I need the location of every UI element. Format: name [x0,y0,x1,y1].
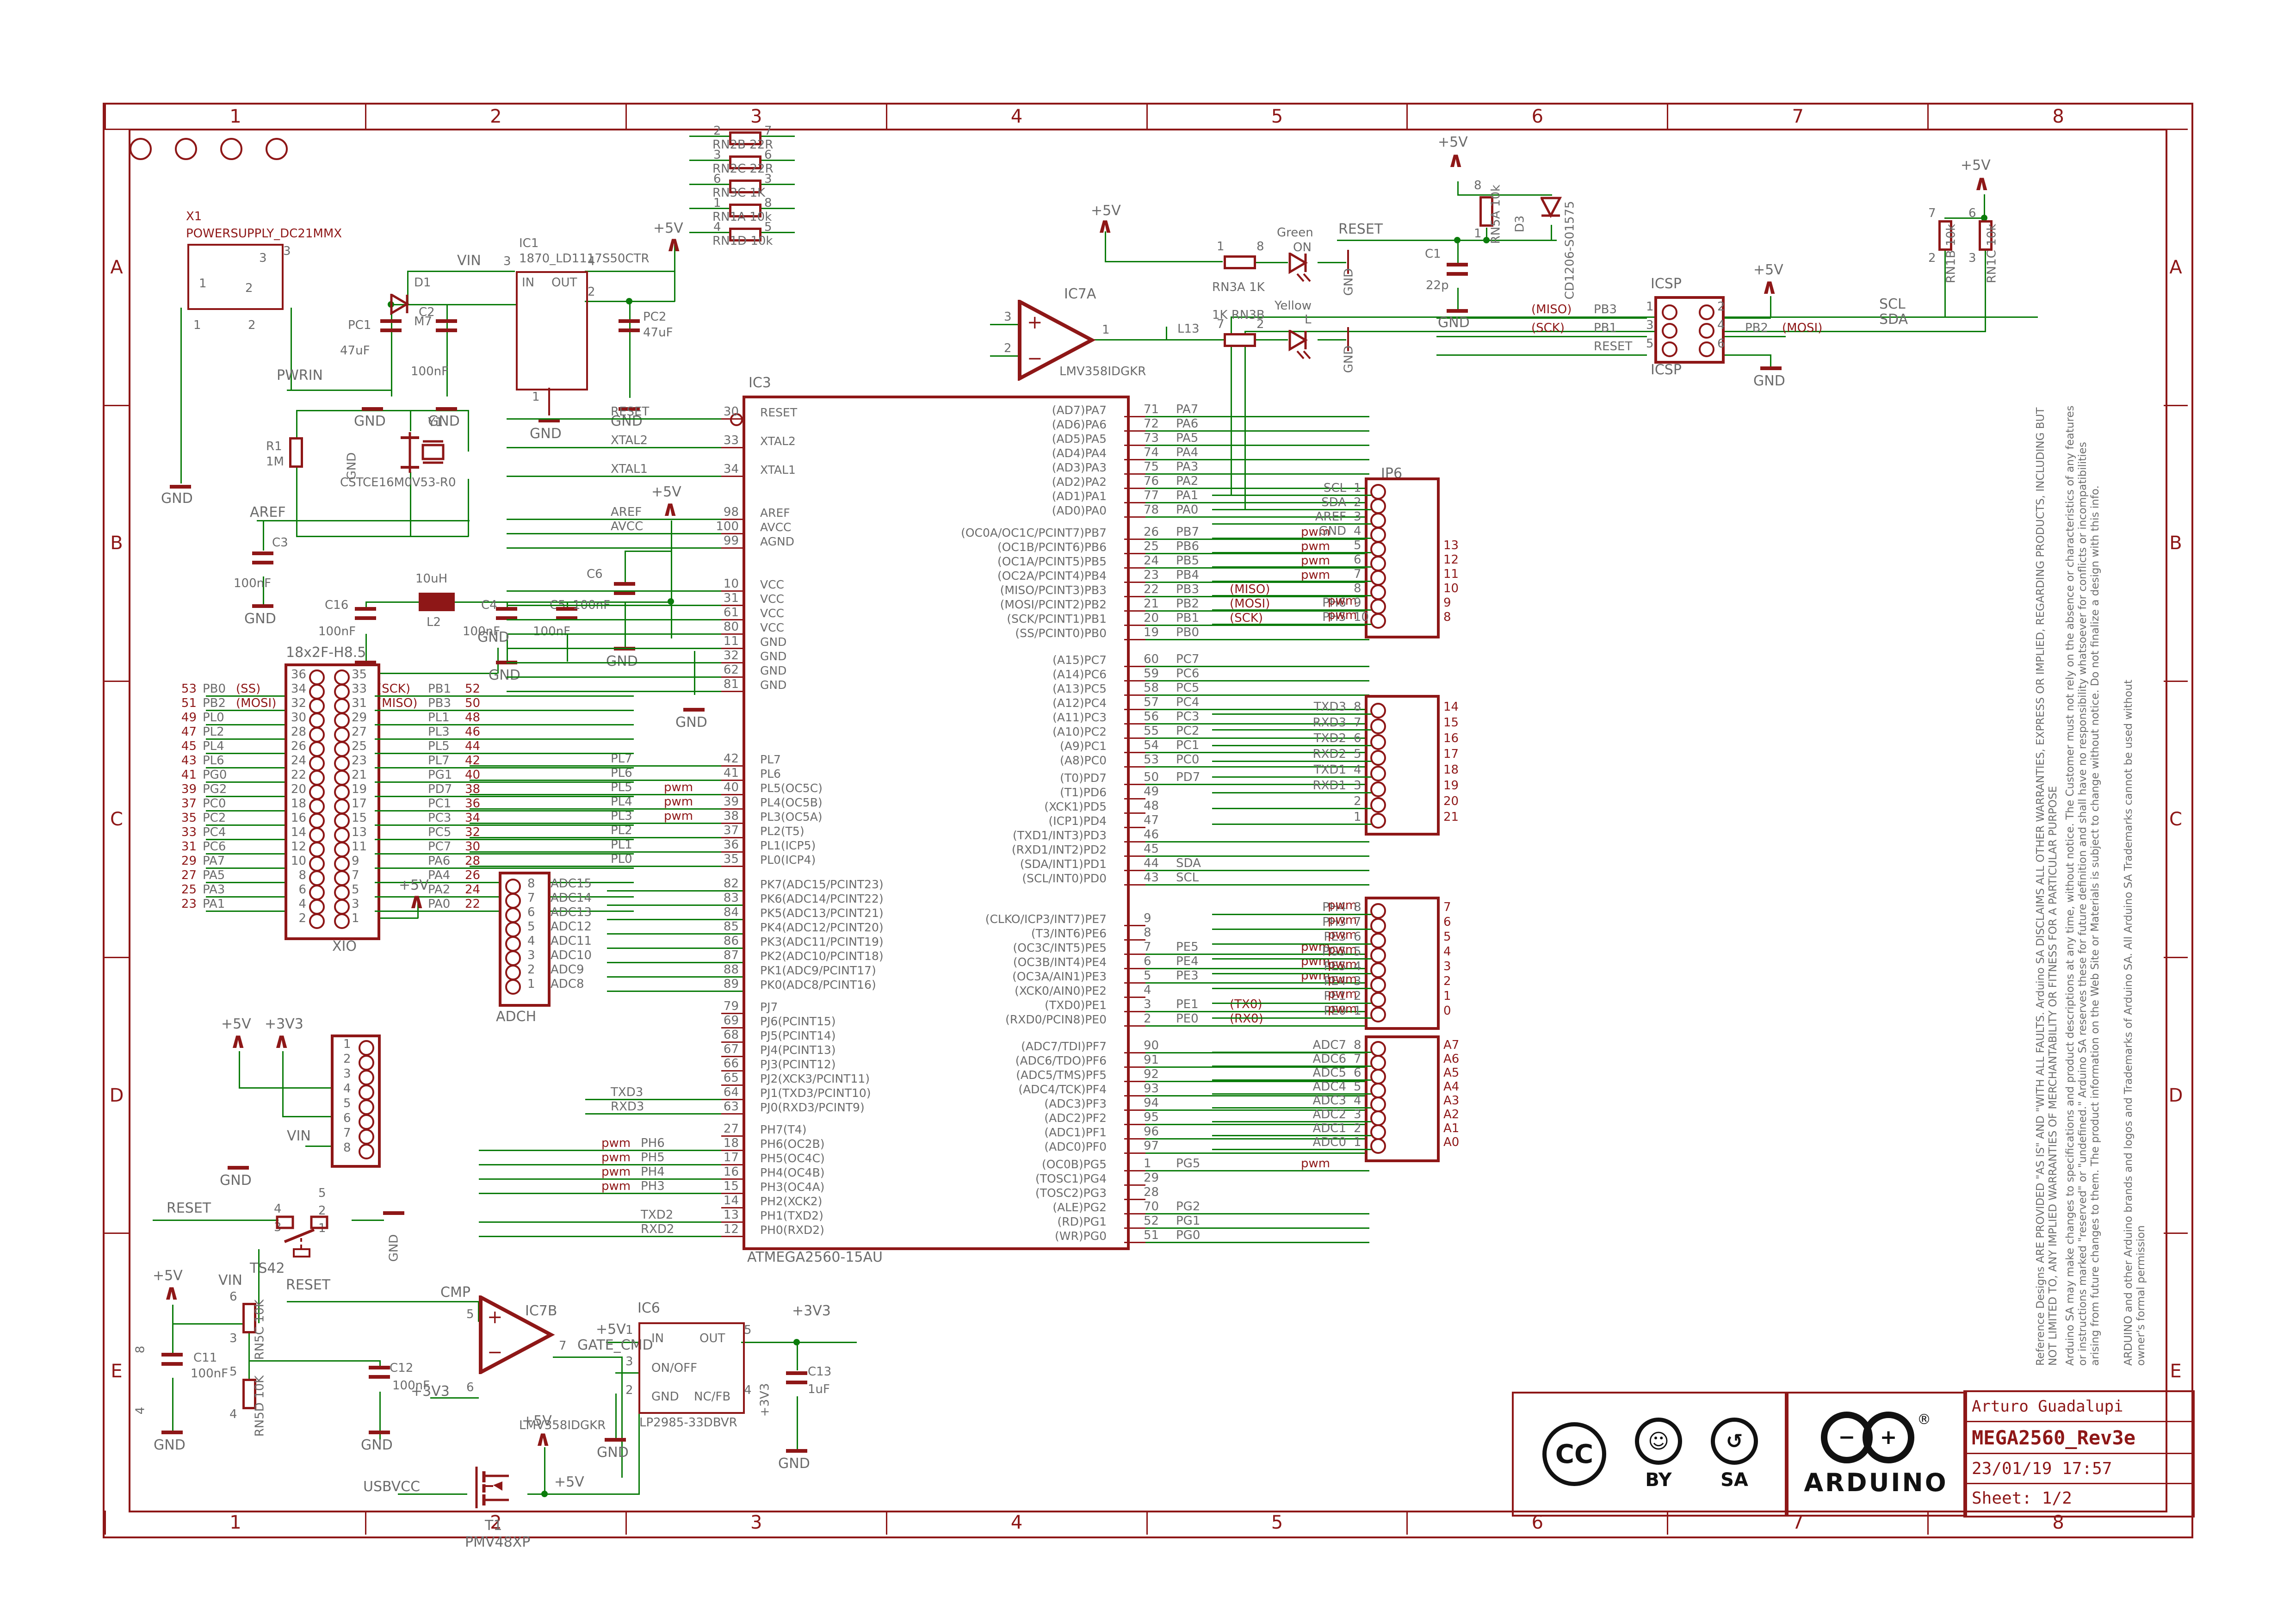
component-ref: R1 [266,440,282,453]
pin-socket [334,842,350,857]
resistor-row: 3 6 RN2C 22R [680,150,810,174]
pin-name: (OC3A/AIN1)PE3 [1012,970,1107,983]
pin-name: (RD)PG1 [1058,1215,1107,1228]
net-label: PA3 [1176,460,1198,474]
pin-number: 5 [343,1096,351,1110]
net-label: XTAL2 [611,434,648,447]
pin-number: 8 [1354,1038,1362,1052]
xio-row: 37 PC0 18 17 PC1 36 [167,799,652,813]
net-label-aref: AREF [250,505,286,520]
frame-row-label: D [105,957,129,1233]
pin-number: 1 [1354,810,1362,824]
pin-number: 48 [1144,799,1159,813]
pin-socket [1370,1055,1386,1071]
header-row: TXD1418 [1212,764,1471,780]
pin-number: 6 [527,905,535,919]
gnd-label: GND [388,1234,401,1262]
pin-name: (AD3)PA3 [1052,461,1107,474]
pin-name: (CLKO/ICP3/INT7)PE7 [985,912,1107,926]
svg-text:−: − [487,1342,503,1363]
p5v-label: +5V [596,1322,626,1337]
net-label: PC2 [203,811,226,825]
pin-number: 97 [1144,1139,1159,1153]
net-label: ADC3 [1240,1094,1346,1108]
pin-row: 99 [470,536,743,551]
pin-number: 8 [288,868,306,882]
pin-number: 7 [1217,318,1225,331]
power-arrow: ∧ [1973,170,1990,195]
pin-number: 17 [352,797,367,811]
pin-socket [309,669,325,685]
net-label: SCL [1240,481,1346,495]
switch-symbol [275,1199,335,1259]
pin-socket [1370,1110,1386,1126]
net-label: ADC2 [1240,1108,1346,1121]
xio-name: XIO [332,939,357,954]
pin-row: 71PA7 [1124,405,1369,419]
pin-socket [359,1144,374,1159]
pin-socket [309,899,325,915]
net-label: PA4 [428,868,450,882]
gnd-symbol [605,1438,626,1442]
net-label: PC2 [1176,724,1199,738]
gnd-symbol [252,604,273,608]
net-label: RXD2 [641,1222,674,1236]
pin-number: 1 [1354,1135,1362,1149]
net-label: ADC12 [551,920,592,934]
net-label: ADC15 [551,877,592,891]
gnd-symbol [436,407,457,411]
pin-label: IN [651,1332,664,1345]
frame-col-label: 1 [105,1511,365,1535]
pin-number: 8 [135,1346,147,1354]
svg-text:+: + [487,1307,503,1328]
net-label: PA7 [1176,403,1198,416]
pin-number: 3 [1354,779,1362,793]
resonator-symbol [396,429,447,476]
net-label: L13 [1177,323,1200,335]
component-ref: C12 [390,1362,413,1375]
pin-number: 4 [229,1408,237,1421]
net-label: PC0 [1176,753,1199,767]
gnd-label: GND [1753,374,1785,389]
pin-socket [1699,341,1714,357]
pin-number: 6 [288,883,306,897]
net-label: PD7 [428,782,452,796]
pin-number: 8 [343,1141,351,1155]
pwm-marker: pwm [1328,898,1357,912]
pin-number: 94 [1144,1096,1159,1110]
component-value: 1uF [808,1383,830,1396]
pin-number: 5 [1354,747,1362,761]
pin-number: 5 [1354,539,1362,552]
pin-number: 3 [1354,1108,1362,1121]
pin-row: 45 [1124,844,1369,859]
power-arrow: ∧ [1096,213,1114,238]
pin-number: 2 [1144,1012,1151,1026]
pin-number: 20 [288,782,306,796]
pin-row: 70PG2 [1124,1202,1369,1216]
pin-socket [505,922,521,937]
pin-socket [1370,918,1386,934]
cap-symbol [619,319,640,332]
pin-row: 74PA4 [1124,448,1369,462]
component-value: 100nF [411,365,448,378]
pin-socket [505,907,521,923]
net-label: ADC11 [551,934,592,948]
arduino-pin-number: 44 [465,739,480,753]
pin-socket [334,669,350,685]
pin-number: 33 [724,434,739,447]
net-label: PL4 [203,739,224,753]
net-label: SDA [1176,856,1201,870]
pin-number: 2 [625,1384,633,1397]
arduino-pin-number: A7 [1443,1038,1459,1052]
pin-number: 74 [1144,446,1159,459]
net-label: PH4 [641,1165,665,1179]
pin-number: 1 [1217,241,1225,253]
pin-row [470,421,743,436]
pin-number: 25 [1144,539,1159,553]
pin-socket [334,770,350,786]
pin-number: 25 [352,739,367,753]
component-ref: Y1 [428,416,443,429]
pwm-marker: pwm [1328,928,1357,942]
arduino-pin-number: 7 [1443,900,1451,914]
frame-row-label: B [105,405,129,681]
component-ref: RN1D [712,234,747,248]
pin-number: 7 [559,1340,567,1352]
pin-number: 3 [1354,510,1362,524]
pin-socket [1370,556,1386,571]
cc-by-label: BY [1645,1469,1671,1491]
pin-number: 2 [245,282,253,295]
pin-number: 1 [527,977,535,991]
net-label: PC4 [1176,695,1199,709]
pin-socket [309,813,325,829]
pin-socket [505,979,521,995]
arduino-pin-number: 13 [1443,539,1459,552]
pin-name: (ADC0)PF0 [1044,1140,1107,1153]
frame-cols-top: 12345678 [105,105,2188,129]
arduino-pin-number: 27 [171,868,197,882]
jp6-header: SCL1SDA2AREF3GND4513612711810PH6pwm99PH5… [1212,483,1471,627]
pin-number: 1 [343,1037,351,1051]
net-label: AREF [1240,510,1346,524]
net-label: PB4 [1176,568,1199,582]
pin-name: (A13)PC5 [1052,682,1107,695]
pin-number: 1 [1354,1004,1362,1018]
pin-name: (MISO/PCINT3)PB3 [1000,583,1107,597]
pin-socket [1370,992,1386,1008]
pin-number: 9 [1354,596,1362,610]
pin-socket [1370,498,1386,514]
frame-row-label: B [2164,405,2188,681]
resistor-row: 4 5 RN1D 10k [680,222,810,246]
pin-number: 29 [1144,1171,1159,1185]
pin-row: 58PC5 [1124,683,1369,698]
pin-number: 95 [1144,1110,1159,1124]
pin-socket [359,1055,374,1071]
pin-socket [334,784,350,800]
mosfet-symbol [467,1462,532,1513]
cc-by-block: ☺ BY [1635,1418,1682,1491]
component-part: CSTCE16M0V53-R0 [340,477,456,489]
pwm-marker: pwm [1328,594,1357,608]
pin-number: 54 [1144,738,1159,752]
pin-socket [1370,797,1386,813]
header-row: 711 [1212,570,1471,584]
component-ref: C11 [193,1352,217,1364]
pin-number: 68 [724,1028,739,1042]
net-label: PH6 [641,1136,665,1150]
pin-number: 1 [1144,1157,1151,1171]
pin-name: (ICP1)PD4 [1048,814,1107,828]
pin-row: 51PG0 [1124,1231,1369,1245]
icsp-label: ICSP [1651,277,1682,291]
pin-row [470,450,743,465]
pin-number: 23 [1144,568,1159,582]
pin-number: 28 [288,725,306,739]
led-name-label: L [1305,314,1312,326]
pin-socket [1370,813,1386,829]
mcu-pin-names: (OC0B)PG5(TOSC1)PG4(TOSC2)PG3(ALE)PG2(RD… [759,1159,1115,1245]
component-part: POWERSUPPLY_DC21MMX [186,228,342,240]
pin-number: 31 [352,696,367,710]
pin-number: 3 [764,172,772,186]
pin-socket [1662,341,1677,357]
pin-name: (ADC3)PF3 [1044,1097,1107,1110]
net-label: PA2 [428,883,450,897]
net-label: PC7 [428,840,451,854]
pwm-marker: pwm [601,1165,631,1179]
p3v3-label: +3V3 [792,1304,831,1319]
pin-socket [309,770,325,786]
arduino-pin-number: 2 [1443,974,1451,988]
pin-number: 16 [288,811,306,825]
pin-number: 100 [716,520,739,533]
net-label: PG1 [428,768,452,782]
pin-number: 2 [1717,300,1725,314]
header-row: TXD2616 [1212,732,1471,748]
pin-number: 61 [724,606,739,619]
arduino-pin-number: 10 [1443,582,1459,595]
arduino-pin-number: A1 [1443,1121,1459,1135]
header-row: GND4 [1212,527,1471,541]
pin-socket [359,1129,374,1145]
xio-row: 35 PC2 16 15 PC3 34 [167,813,652,828]
pin-number: 64 [724,1085,739,1099]
xio-row: 33 PC4 14 13 PC5 32 [167,828,652,842]
gnd-label: GND [220,1173,252,1188]
net-label: PA3 [203,883,225,897]
disclaimer-warranty: Reference Designs ARE PROVIDED "AS IS" A… [2035,403,2060,1366]
arduino-pin-number: 11 [1443,567,1459,581]
pin-number: 3 [229,1332,237,1345]
pin-number: 7 [1354,915,1362,929]
pin-number: 1 [1102,324,1110,336]
net-label: ADC5 [1240,1066,1346,1080]
arduino-pin-number: A3 [1443,1094,1459,1108]
mcu-pin-names: (AD7)PA7(AD6)PA6(AD5)PA5(AD4)PA4(AD3)PA3… [759,405,1115,520]
arduino-pin-number: A5 [1443,1066,1459,1080]
resistor-symbol [289,437,303,468]
net-label: PA6 [1176,417,1198,431]
led-color-label: Yellow [1275,300,1312,312]
component-ref: PC1 [348,319,371,332]
gnd-label: GND [477,630,509,645]
pin-name: (A9)PC1 [1060,739,1107,753]
signal-paren-label: (SCK) [1531,321,1565,335]
pin-name: (ADC6/TDO)PF6 [1015,1054,1107,1067]
net-label-cmp: CMP [440,1285,470,1300]
cap-symbol [786,1371,807,1384]
pin-number: 79 [724,999,739,1013]
component-ref: T1 [485,1518,502,1533]
pin-number: 1 [352,911,359,925]
pin-number: 67 [724,1042,739,1056]
resistor-symbol [1224,333,1256,347]
pin-name: (RXD0/PCIN8)PE0 [1005,1013,1107,1026]
pin-number: 2 [1354,496,1362,509]
pin-number: 15 [352,811,367,825]
pin-socket [359,1070,374,1085]
pin-number: 12 [724,1222,739,1236]
pin-row [470,551,743,565]
pin-number: 2 [248,319,256,332]
pin-number: 21 [352,768,367,782]
pin-name: (T0)PD7 [1060,771,1107,785]
pin-socket [309,827,325,843]
pin-number: 19 [1144,626,1159,639]
mcu-ref: IC3 [749,376,771,390]
pin-number: 2 [588,286,595,298]
pin-row: 31 [470,594,743,608]
pin-socket [309,784,325,800]
pin-name: (SCK/PCINT1)PB1 [1007,612,1107,626]
pin-number: 27 [352,725,367,739]
pin-name: (AD4)PA4 [1052,446,1107,460]
pin-name: (XCK1)PD5 [1044,800,1107,813]
pin-name: (ADC5/TMS)PF5 [1016,1068,1107,1082]
frame-col-label: 8 [1927,105,2188,129]
pin-name: (RXD1/INT2)PD2 [1012,843,1107,856]
component-value: 10k [750,234,773,248]
disclaimer-trademark: ARDUINO and other Arduino brands and log… [2123,672,2147,1366]
pin-number: 7 [527,891,535,905]
pin-number: 7 [343,1126,351,1140]
pin-name: (A10)PC2 [1052,725,1107,738]
pin-number: 38 [724,809,739,823]
net-label: PB0 [1176,626,1199,639]
pin-name: (T3/INT6)PE6 [1031,927,1107,940]
net-label: AREF [611,505,642,519]
pin-label: ON/OFF [651,1362,697,1375]
net-label: PG2 [203,782,227,796]
pin-row: AREF98 [470,508,743,522]
pin-number: 91 [1144,1053,1159,1067]
cap-symbol [369,1366,390,1379]
arduino-pin-number: 23 [171,897,197,911]
frame-col-label: 3 [625,105,886,129]
pin-number: 70 [1144,1200,1159,1214]
header-row: 513 [1212,541,1471,555]
pwm-marker: pwm [601,1151,631,1165]
signal-label: PB2 [1745,321,1768,335]
arduino-wordmark: ARDUINO [1804,1468,1948,1497]
net-label: GND [1240,524,1346,538]
pin-number: 3 [343,1067,351,1081]
pin-label: OUT [551,277,577,289]
pin-socket [334,712,350,728]
pin-number: 4 [1354,1094,1362,1108]
pin-name: (OC3B/INT4)PE4 [1013,955,1107,969]
pin-number: 6 [466,1381,474,1394]
title-block-title: MEGA2560_Rev3e [1965,1421,2193,1453]
pin-row: 67 [470,1045,743,1059]
arduino-pin-number: 35 [171,811,197,825]
pin-number: 23 [352,754,367,768]
pin-number: 3 [1646,318,1654,332]
net-label: PC5 [428,825,451,839]
title-block-author: Arturo Guadalupi [1965,1392,2193,1421]
component-ref: C1 [1425,248,1441,260]
net-label: ADC6 [1240,1052,1346,1066]
pin-number: 14 [724,1194,739,1208]
header-row: 5 [213,1099,379,1114]
header-row: 6 [213,1114,379,1129]
pin-number: 27 [724,1122,739,1136]
pin-number: 4 [744,1384,752,1397]
pin-socket [334,870,350,886]
component-ref: C2 [419,306,435,319]
xio-row: 29 PA7 10 9 PA6 28 [167,856,652,871]
net-label: AVCC [611,520,643,533]
pin-number: 3 [713,148,721,162]
pin-number: 8 [1144,926,1151,940]
pwm-marker: pwm [664,795,693,809]
component-ref: RN1C 10k [1986,224,1999,284]
pin-number: 5 [1144,969,1151,983]
pin-socket [334,813,350,829]
arduino-pin-number: 24 [465,883,480,897]
header-row: PH5pwm108 [1212,613,1471,627]
pin-number: 7 [1354,1052,1362,1066]
pwm-marker: pwm [664,809,693,823]
pin-number: 6 [1354,553,1362,567]
arduino-pin-number: 43 [171,754,197,768]
gnd-symbol [383,1211,404,1215]
net-label: PB6 [1176,539,1199,553]
pin-number: 29 [352,711,367,725]
cc-sa-block: ↺ SA [1711,1418,1758,1491]
pin-number: 17 [724,1151,739,1165]
pin-row: 59PC6 [1124,669,1369,683]
diode-symbol [388,294,421,315]
component-value: 100nF [318,626,356,638]
disclaimer-changes: Arduino SA may make changes to specifica… [2064,403,2102,1366]
p5v-label: +5V [554,1475,584,1490]
title-block: Arturo Guadalupi MEGA2560_Rev3e 23/01/19… [1963,1390,2195,1518]
pin-row: pwmPH315 [470,1182,743,1196]
signal-label: RESET [1594,340,1632,353]
pin-number: 41 [724,766,739,780]
net-label: PL0 [203,711,224,725]
component-ref: RN5A 10k [1490,185,1503,244]
arduino-pin-number: 53 [171,682,197,696]
gnd-label: GND [361,1438,393,1453]
pin-number: 3 [625,1356,633,1368]
